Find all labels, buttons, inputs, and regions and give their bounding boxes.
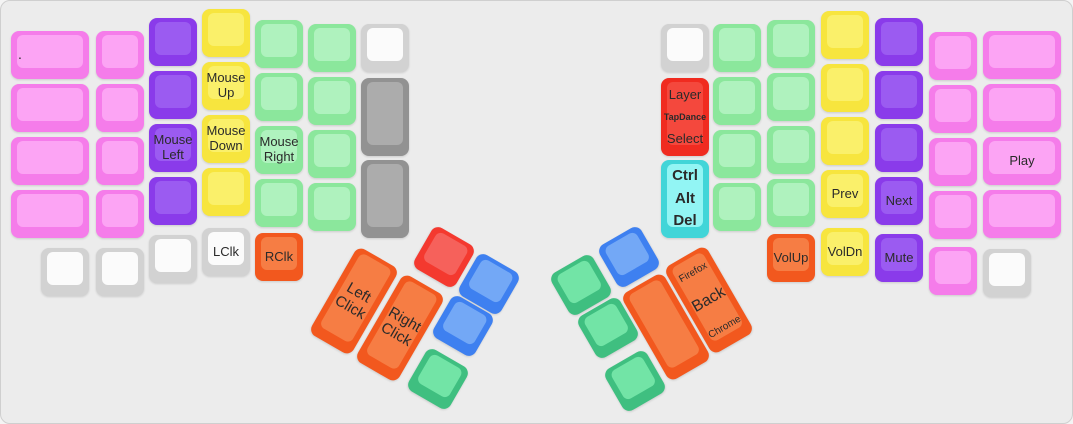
right-half-key-15[interactable] — [821, 117, 869, 165]
key-voldn[interactable]: VolDn — [821, 228, 869, 276]
keycap-top-surface — [989, 141, 1055, 174]
key-volup[interactable]: VolUp — [767, 234, 815, 282]
right-half-key-20[interactable] — [875, 124, 923, 172]
right-half-key-13[interactable] — [821, 11, 869, 59]
right-half-key-29[interactable] — [983, 84, 1061, 132]
keycap-top-surface — [719, 81, 755, 114]
right-half-key-7[interactable] — [713, 183, 761, 231]
keycap-top-surface — [773, 24, 809, 57]
keycap-top-surface — [935, 142, 971, 175]
keycap-top-surface — [667, 82, 703, 145]
right-half-key-24[interactable] — [929, 85, 977, 133]
keycap-top-surface — [827, 174, 863, 207]
right-half-key-6[interactable] — [713, 130, 761, 178]
right-half-key-31[interactable] — [983, 190, 1061, 238]
right-half-key-18[interactable] — [875, 18, 923, 66]
keycap-top-surface — [881, 128, 917, 161]
right-half-key-32[interactable] — [983, 249, 1031, 297]
keycap-top-surface — [881, 22, 917, 55]
right-half-key-11[interactable] — [767, 179, 815, 227]
keycap-top-surface — [989, 88, 1055, 121]
keycap-top-surface — [989, 194, 1055, 227]
right-half-key-10[interactable] — [767, 126, 815, 174]
keycap-top-surface — [935, 251, 971, 284]
key-ctrl-alt-del[interactable]: CtrlAltDel — [661, 160, 709, 238]
right-half-key-1[interactable] — [661, 24, 709, 72]
keycap-top-surface — [827, 15, 863, 48]
keycap-top-surface — [719, 187, 755, 220]
keycap-top-surface — [881, 238, 917, 271]
right-half-key-26[interactable] — [929, 191, 977, 239]
right-half-key-27[interactable] — [929, 247, 977, 295]
keycap-top-surface — [773, 130, 809, 163]
keycap-top-surface — [827, 121, 863, 154]
keycap-top-surface — [935, 89, 971, 122]
keycap-top-surface — [719, 28, 755, 61]
right-half-key-5[interactable] — [713, 77, 761, 125]
keycap-top-surface — [827, 68, 863, 101]
keycap-top-surface — [773, 238, 809, 271]
keycap-top-surface — [935, 195, 971, 228]
keycap-top-surface — [719, 134, 755, 167]
right-half-key-25[interactable] — [929, 138, 977, 186]
keycap-top-surface — [989, 253, 1025, 286]
right-half-key-28[interactable] — [983, 31, 1061, 79]
keycap-top-surface — [667, 28, 703, 61]
right-half-key-23[interactable] — [929, 32, 977, 80]
right-half: LayerTapDanceSelectCtrlAltDelVolUpPrevVo… — [1, 1, 1072, 423]
keycap-top-surface — [881, 181, 917, 214]
right-half-key-19[interactable] — [875, 71, 923, 119]
right-half-key-8[interactable] — [767, 20, 815, 68]
keycap-top-surface — [773, 77, 809, 110]
keycap-top-surface — [773, 183, 809, 216]
keymap-editor-canvas: .MouseLeftMouseUpMouseDownLClkMouseRight… — [0, 0, 1073, 424]
key-layer-tapdance-select[interactable]: LayerTapDanceSelect — [661, 78, 709, 156]
keycap-top-surface — [827, 232, 863, 265]
key-next[interactable]: Next — [875, 177, 923, 225]
right-half-key-14[interactable] — [821, 64, 869, 112]
keycap-top-surface — [881, 75, 917, 108]
key-play[interactable]: Play — [983, 137, 1061, 185]
right-half-key-9[interactable] — [767, 73, 815, 121]
right-half-key-4[interactable] — [713, 24, 761, 72]
keycap-top-surface — [935, 36, 971, 69]
key-prev[interactable]: Prev — [821, 170, 869, 218]
keycap-top-surface — [667, 164, 703, 227]
key-mute[interactable]: Mute — [875, 234, 923, 282]
keycap-top-surface — [989, 35, 1055, 68]
